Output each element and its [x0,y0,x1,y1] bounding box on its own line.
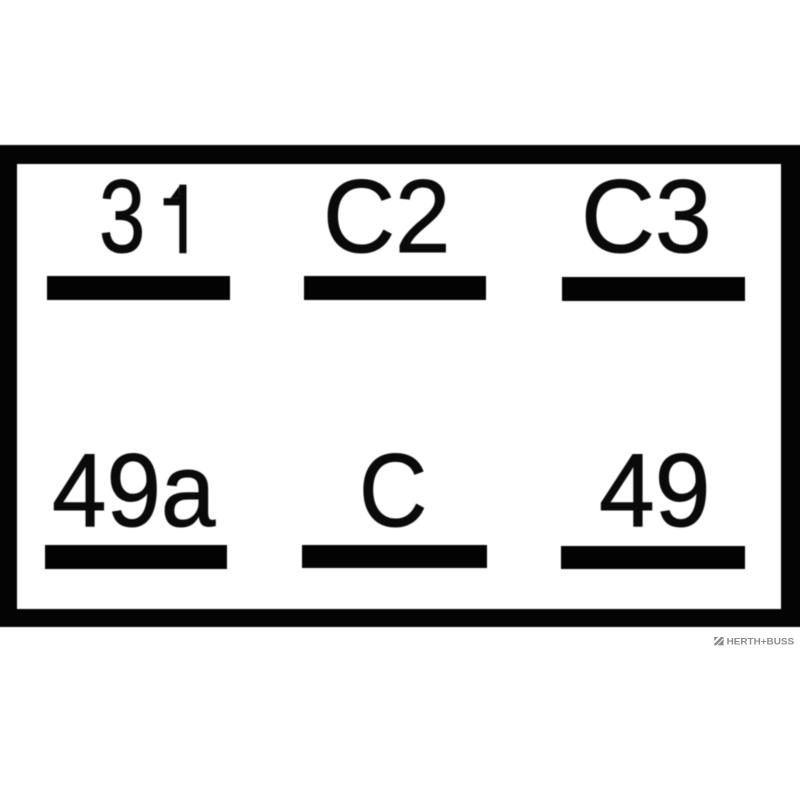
svg-text:HERTH+BUSS: HERTH+BUSS [727,637,795,647]
